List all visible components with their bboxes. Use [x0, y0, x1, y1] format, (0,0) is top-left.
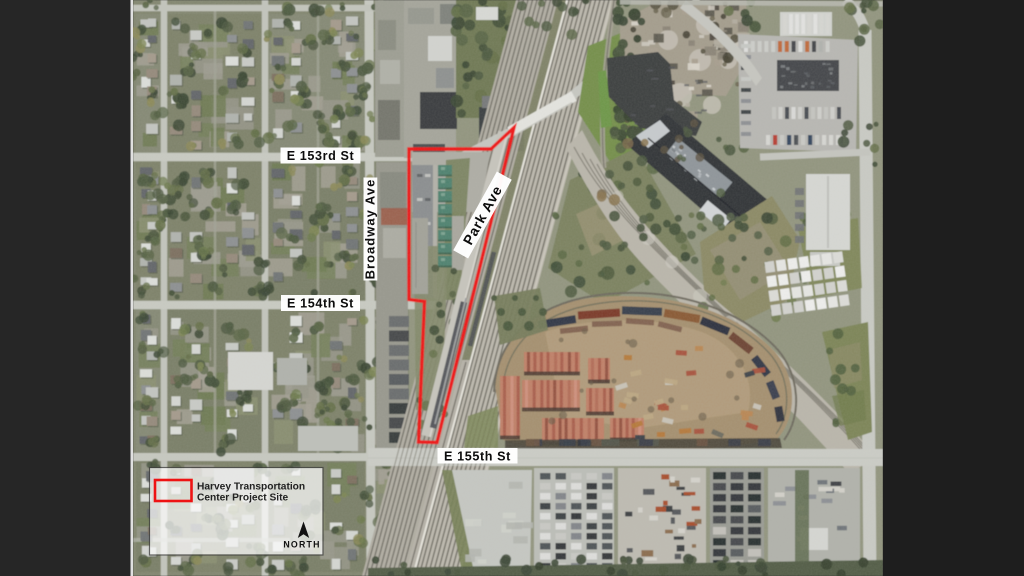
- svg-text:NORTH: NORTH: [283, 540, 320, 550]
- svg-text:E 155th St: E 155th St: [444, 449, 511, 463]
- svg-text:E 153rd St: E 153rd St: [287, 149, 355, 163]
- svg-text:E 154th St: E 154th St: [287, 297, 354, 311]
- svg-text:Broadway Ave: Broadway Ave: [363, 179, 378, 280]
- svg-text:Center Project Site: Center Project Site: [197, 493, 288, 504]
- svg-text:Harvey Transportation: Harvey Transportation: [197, 482, 305, 493]
